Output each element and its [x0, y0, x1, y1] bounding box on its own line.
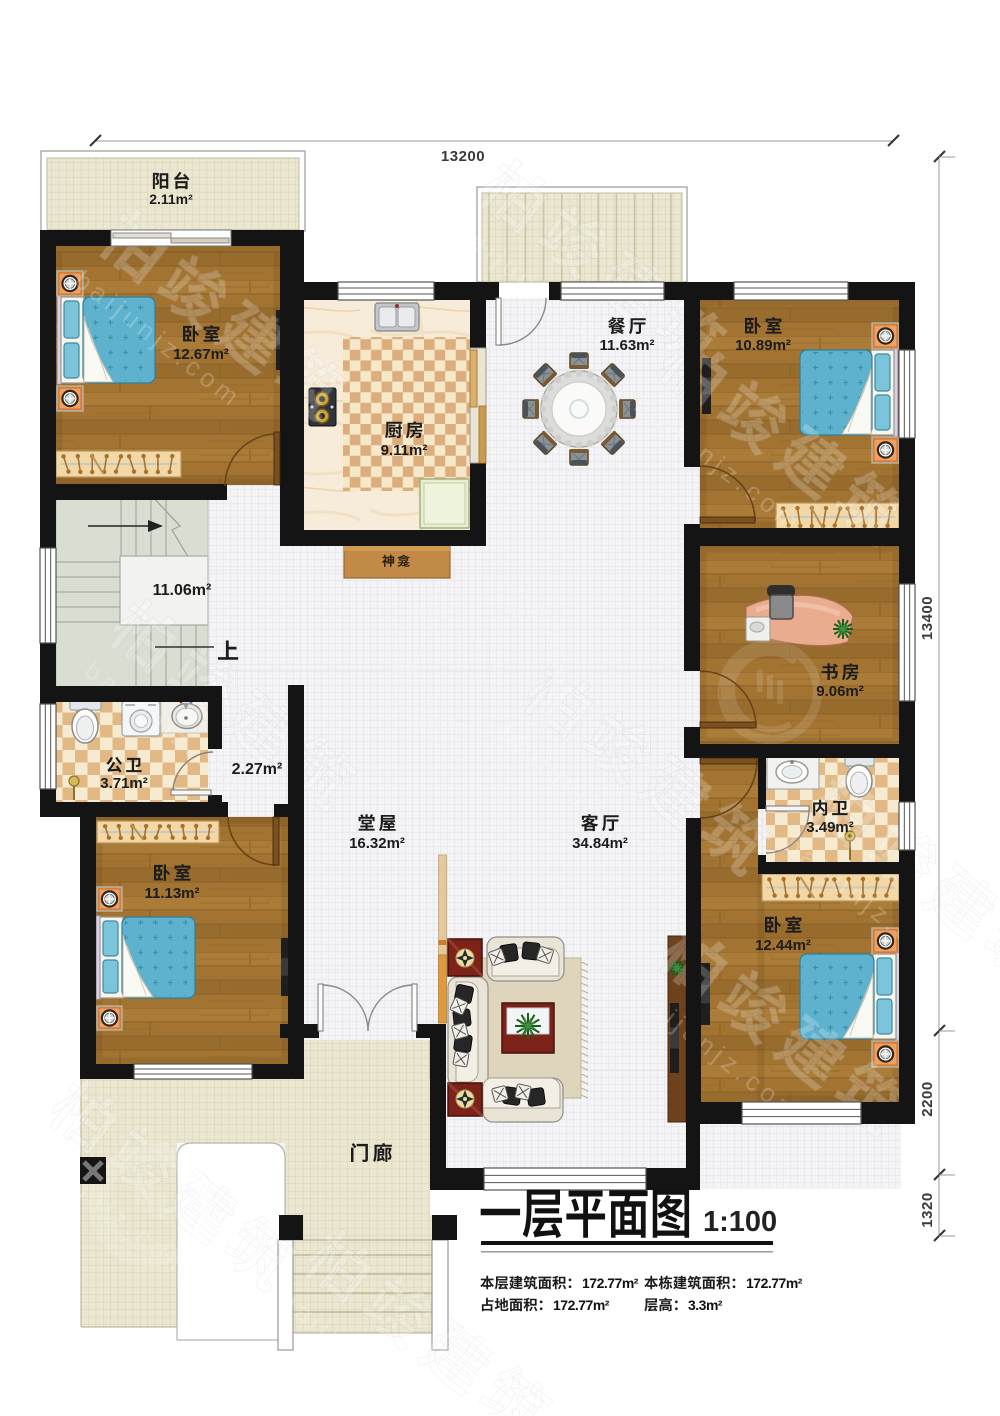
svg-text:172.77m²: 172.77m² — [553, 1297, 610, 1313]
svg-text:1:100: 1:100 — [703, 1206, 777, 1238]
svg-text:12.67m²: 12.67m² — [173, 346, 229, 363]
svg-text:3.3m²: 3.3m² — [688, 1297, 723, 1313]
svg-text:13200: 13200 — [441, 148, 485, 165]
svg-text:11.63m²: 11.63m² — [599, 337, 654, 354]
svg-text:13400: 13400 — [919, 596, 936, 640]
svg-text:172.77m²: 172.77m² — [582, 1275, 639, 1291]
svg-text:16.32m²: 16.32m² — [349, 835, 405, 852]
svg-text:3.49m²: 3.49m² — [806, 819, 854, 836]
svg-text:3.71m²: 3.71m² — [100, 775, 148, 792]
svg-text:11.13m²: 11.13m² — [144, 885, 199, 902]
svg-text:9.11m²: 9.11m² — [381, 442, 428, 459]
svg-text:34.84m²: 34.84m² — [572, 835, 628, 852]
svg-text:2.11m²: 2.11m² — [149, 191, 193, 207]
svg-text:12.44m²: 12.44m² — [755, 937, 811, 954]
svg-text:172.77m²: 172.77m² — [746, 1275, 803, 1291]
svg-text:11.06m²: 11.06m² — [153, 582, 212, 599]
svg-text:9.06m²: 9.06m² — [816, 683, 864, 700]
svg-text:1320: 1320 — [919, 1192, 936, 1227]
svg-text:10.89m²: 10.89m² — [735, 337, 791, 354]
svg-text:2200: 2200 — [919, 1081, 936, 1116]
svg-text:2.27m²: 2.27m² — [232, 761, 283, 778]
